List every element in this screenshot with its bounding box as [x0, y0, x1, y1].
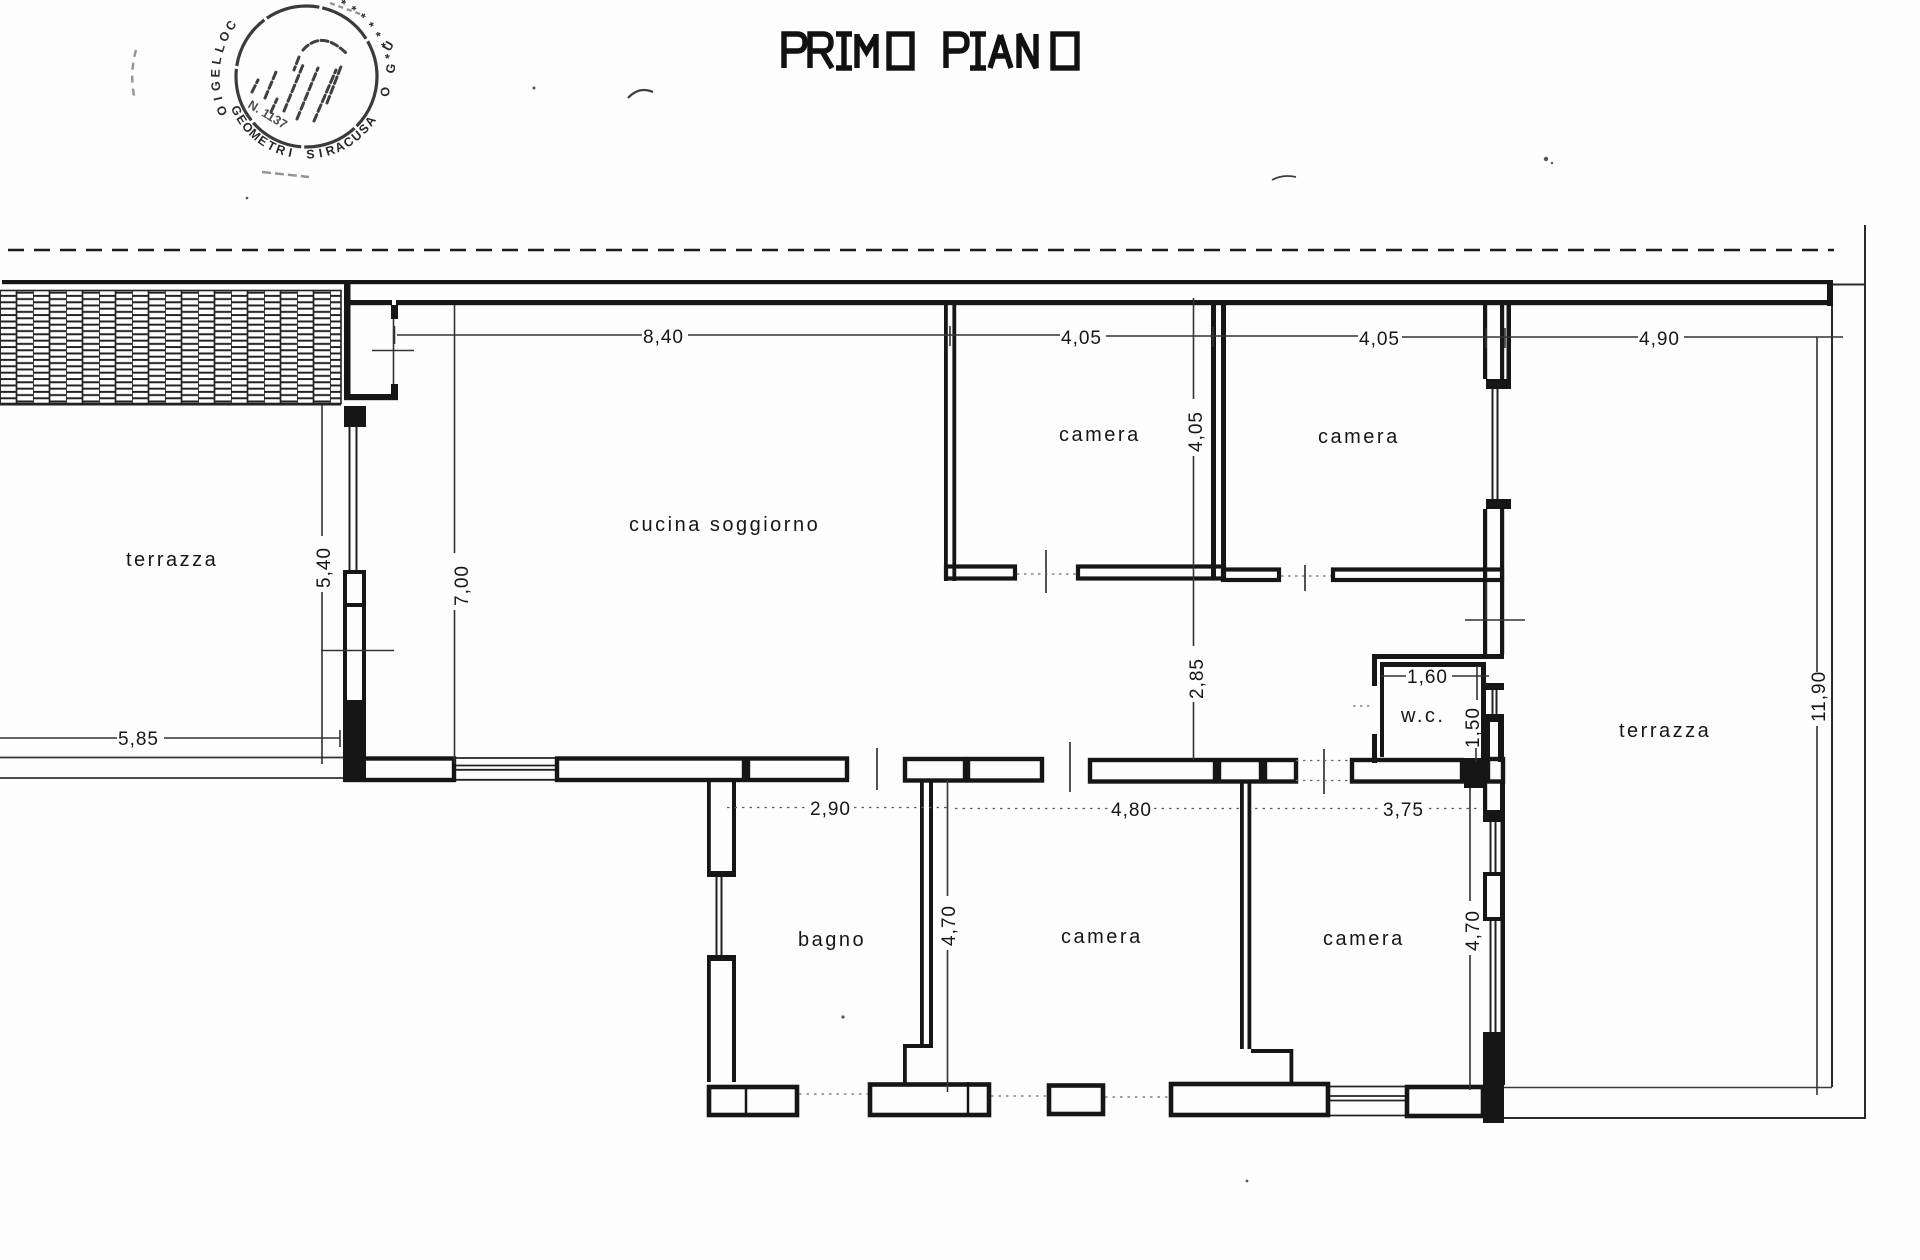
svg-text:O: O	[378, 86, 393, 98]
svg-text:11,90: 11,90	[1809, 671, 1830, 722]
svg-text:C: C	[223, 18, 240, 33]
svg-text:4,70: 4,70	[1463, 910, 1484, 951]
svg-text:camera: camera	[1061, 926, 1143, 948]
svg-text:L: L	[209, 55, 224, 65]
svg-text:S: S	[306, 147, 315, 161]
svg-text:I: I	[211, 95, 225, 102]
svg-text:4,05: 4,05	[1061, 328, 1102, 349]
svg-text:E: E	[208, 69, 222, 78]
svg-text:8,40: 8,40	[643, 327, 684, 348]
svg-text:I: I	[318, 146, 324, 160]
svg-text:G: G	[209, 80, 224, 91]
svg-text:5,40: 5,40	[314, 547, 335, 588]
svg-text:camera: camera	[1323, 928, 1405, 950]
svg-text:cucina soggiorno: cucina soggiorno	[629, 514, 820, 536]
svg-text:I: I	[287, 146, 293, 160]
svg-text:1,60: 1,60	[1407, 667, 1448, 688]
svg-text:4,05: 4,05	[1186, 411, 1207, 452]
svg-text:4,80: 4,80	[1111, 800, 1152, 821]
svg-text:1,50: 1,50	[1463, 707, 1484, 748]
svg-text:camera: camera	[1318, 426, 1400, 448]
svg-text:L: L	[212, 42, 228, 54]
svg-text:bagno: bagno	[798, 929, 866, 951]
svg-text:*: *	[317, 0, 324, 4]
svg-text:7,00: 7,00	[452, 565, 473, 606]
svg-text:G: G	[383, 63, 398, 75]
svg-text:U: U	[380, 39, 397, 54]
svg-text:*: *	[369, 30, 384, 41]
svg-text:terrazza: terrazza	[126, 549, 218, 571]
svg-text:terrazza: terrazza	[1619, 720, 1711, 742]
svg-text:w.c.: w.c.	[1400, 705, 1445, 727]
svg-text:5,85: 5,85	[118, 729, 159, 750]
svg-text:*: *	[378, 53, 393, 61]
svg-text:2,85: 2,85	[1187, 658, 1208, 699]
svg-text:2,90: 2,90	[810, 799, 851, 820]
svg-text:4,90: 4,90	[1639, 329, 1680, 350]
svg-text:camera: camera	[1059, 424, 1141, 446]
svg-text:4,70: 4,70	[939, 905, 960, 946]
svg-text:*: *	[363, 19, 377, 32]
svg-text:O: O	[214, 103, 231, 118]
svg-text:4,05: 4,05	[1359, 329, 1400, 350]
svg-text:3,75: 3,75	[1383, 800, 1424, 821]
